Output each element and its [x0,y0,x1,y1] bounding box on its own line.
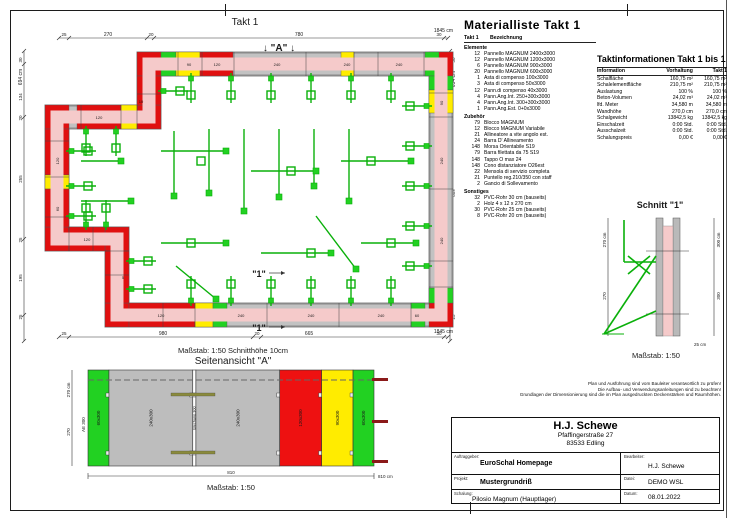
svg-text:20: 20 [148,32,154,37]
side-panel-label: 240x300 [235,409,240,427]
takt-info-row: Auslastung100 %100 % [597,89,727,96]
material-col-name: Bezeichnung [490,35,522,41]
takt-row-vorhaltung: 0,00 € [657,135,693,142]
section-wall [646,218,689,336]
svg-text:120: 120 [96,115,103,120]
takt-info: Taktinformationen Takt 1 bis 1 Informati… [597,54,727,142]
takt-row-takt1: 100 % [693,89,727,96]
value-bearbeiter: H.J. Schewe [648,463,685,470]
takt-row-label: Schalungspreis [597,135,657,142]
takt-col-vorhaltung: Vorhaltung [657,68,693,76]
svg-text:60: 60 [55,206,60,211]
takt-row-takt1: 24,02 m³ [693,95,727,102]
takt-info-title: Taktinformationen Takt 1 bis 1 [597,54,727,64]
company-city: 83533 Edling [452,440,719,448]
svg-text:240: 240 [378,313,385,318]
svg-text:90: 90 [187,62,192,67]
material-item: 8PVC-Rohr 20 cm (bauseits) [464,213,596,219]
svg-text:120: 120 [84,237,91,242]
svg-text:195: 195 [18,274,23,282]
drawing-sheet: Takt 1 ↓ "A" ↓ 25 270 20 780 30 1845 cm … [0,0,730,518]
takt-row-label: Beton-Volumen [597,95,657,102]
svg-text:694 cm: 694 cm [18,69,24,85]
title-block: H.J. Schewe Pfaffingerstraße 27 83533 Ed… [451,417,720,504]
plan-title: Takt 1 [232,17,259,28]
formwork-panel-patches [45,52,453,327]
label-projekt: Projekt: [454,476,468,481]
material-item-label: Pann.Ang.Est. 0+0x3000 [484,106,541,112]
value-auftraggeber: EuroSchal Homepage [480,460,552,467]
section-dim-bottom: 25 cm [694,342,707,347]
label-datum: Datum: [624,491,638,496]
svg-text:665: 665 [305,331,314,337]
label-auftraggeber: Auftraggeber: [454,454,479,459]
takt-info-rows: Schalfläche160,75 m²160,75 m²Schalelemen… [597,75,727,141]
svg-text:240: 240 [274,62,281,67]
svg-text:120: 120 [55,157,60,164]
takt-row-label: Auslastung [597,89,657,96]
brace-symbols [81,129,419,302]
takt-row-takt1: 210,75 m² [693,82,727,89]
takt-row-vorhaltung: 100 % [657,89,693,96]
takt-row-label: Schalfläche [597,75,657,82]
svg-text:60: 60 [415,313,420,318]
svg-text:25: 25 [18,237,23,243]
takt-info-row: Schalgewicht13842,5 kg13842,5 kg [597,115,727,122]
side-view-scale: Maßstab: 1:50 [207,483,255,492]
takt-info-table: Information Vorhaltung Takt 1 Schalfläch… [597,67,727,142]
section-scale: Maßstab: 1:50 [632,351,680,360]
section-dim-right: 300 [716,292,721,300]
material-list-rows: Elemente12Pannello MAGNUM 2400x300012Pan… [464,45,596,219]
takt-row-label: Ausschalzeit [597,128,657,135]
company-name: H.J. Schewe [452,418,719,432]
takt-info-row: Wandhöhe270,0 cm270,0 cm [597,109,727,116]
takt-row-takt1: 270,0 cm [693,109,727,116]
side-view-panels: 60x300240x300Blechanp.300240x300120x3009… [88,370,374,466]
side-panel-label: 240x300 [148,409,153,427]
svg-text:1845 cm: 1845 cm [434,28,453,34]
takt-row-vorhaltung: 0:00 Std. [657,128,693,135]
takt-row-takt1: 0:00 Std. [693,128,727,135]
svg-text:25: 25 [18,314,23,320]
section-view-1: Schnitt "1" 270 cm 270 300 cm 300 25 cm … [594,196,726,364]
takt-info-row: Schalelementfläche210,75 m²210,75 m² [597,82,727,89]
svg-text:240: 240 [439,157,444,164]
takt-info-row: Ausschalzeit0:00 Std.0:00 Std. [597,128,727,135]
title-block-header: H.J. Schewe Pfaffingerstraße 27 83533 Ed… [452,418,719,453]
side-view-title: Seitenansicht "A" [195,356,272,367]
title-block-row-client: Auftraggeber: EuroSchal Homepage Bearbei… [452,453,719,475]
takt-row-vorhaltung: 34,580 m [657,102,693,109]
wall-concrete [57,64,441,315]
right-edge-bars [372,378,388,463]
takt-row-takt1: 13842,5 kg [693,115,727,122]
takt-row-vorhaltung: 210,75 m² [657,82,693,89]
takt-row-label: Schalelementfläche [597,82,657,89]
side-panel-label: 90x300 [335,410,340,425]
takt-row-takt1: 160,75 m² [693,75,727,82]
title-block-row-project: Projekt: Mustergrundriß Datei: DEMO WSL [452,475,719,490]
takt-row-vorhaltung: 0:00 Std. [657,122,693,129]
takt-info-row: lfd. Meter34,580 m34,580 m [597,102,727,109]
side-panel-label: 60x300 [361,410,366,425]
company-street: Pfaffingerstraße 27 [452,432,719,440]
svg-text:780: 780 [295,32,304,38]
material-item-label: Gancio di Sollevamento [484,181,538,187]
svg-text:120: 120 [158,313,165,318]
takt-row-label: Schalgewicht [597,115,657,122]
svg-text:240: 240 [238,313,245,318]
svg-text:1845 cm: 1845 cm [434,329,453,335]
takt-col-information: Information [597,68,657,76]
takt-row-label: Wandhöhe [597,109,657,116]
takt-row-vorhaltung: 270,0 cm [657,109,693,116]
takt-row-vorhaltung: 13842,5 kg [657,115,693,122]
material-item-qty: 2 [464,181,480,187]
side-panel-label: 60x300 [96,410,101,425]
section-dim-right-total: 300 cm [716,232,721,247]
material-item-label: PVC-Rohr 20 cm (bauseits) [484,213,546,219]
fold-mark [627,4,628,16]
svg-text:10: 10 [139,99,144,104]
divider [620,453,621,474]
divider [620,490,621,504]
svg-text:25: 25 [61,331,67,336]
svg-text:980: 980 [159,331,168,337]
value-datum: 08.01.2022 [648,494,681,501]
material-item: 2Gancio di Sollevamento [464,181,596,187]
side-dim-width-total: 810 cm [378,474,393,479]
ae-label: AE 300 [81,417,86,432]
section-title: Schnitt "1" [637,200,684,210]
takt-row-label: lfd. Meter [597,102,657,109]
material-col-takt: Takt 1 [464,35,490,41]
section-dim-left: 270 [602,292,607,300]
svg-text:240: 240 [396,62,403,67]
takt-info-row: Einschalzeit0:00 Std.0:00 Std. [597,122,727,129]
svg-text:120: 120 [214,62,221,67]
svg-text:30: 30 [18,57,23,63]
divider [620,475,621,489]
takt-row-vorhaltung: 24,02 m³ [657,95,693,102]
side-dim-height-total: 270 cm [66,382,71,397]
value-datei: DEMO WSL [648,479,683,486]
svg-text:240: 240 [308,313,315,318]
takt-row-takt1: 34,580 m [693,102,727,109]
takt-col-takt1: Takt 1 [693,68,727,76]
disclaimer: Plan und Ausführung sind vom Bauleiter v… [455,381,721,398]
svg-text:25: 25 [61,32,67,37]
takt-row-label: Einschalzeit [597,122,657,129]
side-dim-width: 810 [227,470,235,475]
svg-text:240: 240 [344,62,351,67]
takt-row-takt1: 0,00 € [693,135,727,142]
svg-text:20: 20 [18,115,23,121]
material-item-qty: 8 [464,213,480,219]
title-block-row-schalung: Schalung: Pilosio Magnum (Hauptlager) Da… [452,490,719,504]
svg-text:240: 240 [439,237,444,244]
takt-info-row: Beton-Volumen24,02 m³24,02 m³ [597,95,727,102]
material-list: Materialliste Takt 1 Takt 1 Bezeichnung … [464,18,596,219]
material-list-header: Takt 1 Bezeichnung [464,35,596,43]
takt-info-row: Schalfläche160,75 m²160,75 m² [597,75,727,82]
material-item: 1Pann.Ang.Est. 0+0x3000 [464,106,596,112]
side-panel-label: 120x300 [298,409,303,427]
label-schalung: Schalung: [454,491,473,496]
takt-row-vorhaltung: 160,75 m² [657,75,693,82]
svg-text:"1": "1" [252,269,266,279]
svg-text:134: 134 [18,93,23,101]
material-item-qty: 1 [464,106,480,112]
svg-text:90: 90 [439,100,444,105]
takt-info-row: Schalungspreis0,00 €0,00 € [597,135,727,142]
side-view-a: Seitenansicht "A" 60x300240x300Blechanp.… [58,354,412,504]
side-dim-height: 270 [66,428,71,436]
svg-text:255: 255 [18,175,23,183]
section-dim-left-total: 270 cm [602,232,607,247]
section-bracket-and-props [602,220,656,334]
material-list-title: Materialliste Takt 1 [464,18,596,32]
svg-text:"1": "1" [252,323,266,333]
takt-row-takt1: 0:00 Std. [693,122,727,129]
label-bearbeiter: Bearbeiter: [624,454,644,459]
value-schalung: Pilosio Magnum (Hauptlager) [472,496,556,503]
floor-plan: Takt 1 ↓ "A" ↓ 25 270 20 780 30 1845 cm … [11,11,455,359]
label-datei: Datei: [624,476,635,481]
value-projekt: Mustergrundriß [480,479,532,486]
disclaimer-line: Grundlagen der Dimensionierung sind die … [455,392,721,398]
svg-text:270: 270 [104,32,113,38]
